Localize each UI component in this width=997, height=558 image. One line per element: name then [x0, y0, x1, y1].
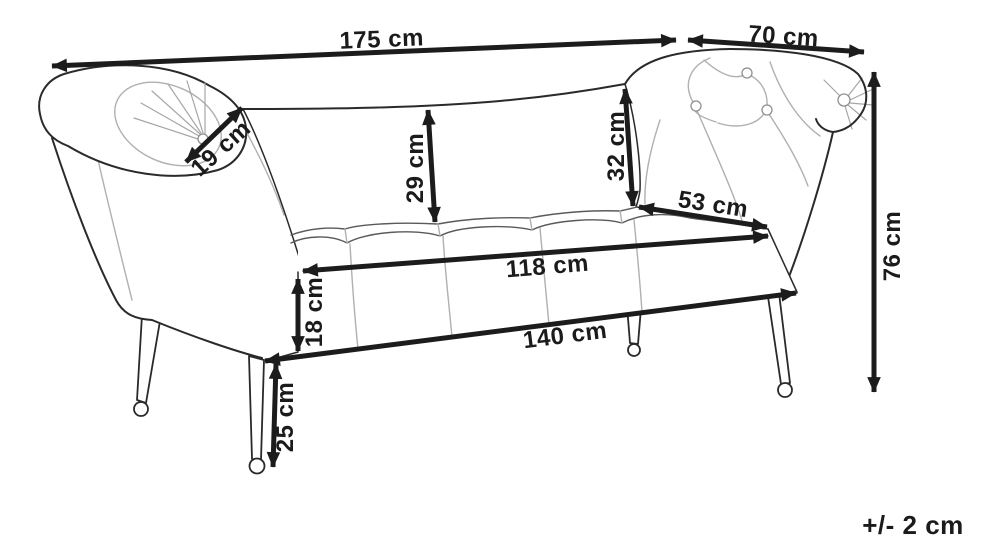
- dim-seat-thickness-label: 18 cm: [301, 277, 328, 348]
- dim-backrest-right-height-label: 32 cm: [603, 111, 630, 182]
- dimension-diagram-page: 175 cm 70 cm 19 cm 29 cm 32 cm 53 cm 118…: [0, 0, 997, 558]
- bench-dimension-diagram: 175 cm 70 cm 19 cm 29 cm 32 cm 53 cm 118…: [0, 0, 997, 558]
- dim-backrest-left-height-label: 29 cm: [402, 133, 429, 204]
- ball-foot-left-rear: [134, 402, 148, 416]
- tufting-button: [742, 68, 752, 78]
- ball-foot-left-front: [250, 459, 265, 474]
- leg-left-front: [249, 356, 264, 460]
- leg-left-rear: [137, 315, 160, 403]
- tufting-button: [762, 105, 772, 115]
- dim-armrest-width-label: 70 cm: [747, 21, 819, 53]
- tolerance-note: +/- 2 cm: [862, 510, 964, 540]
- dim-total-width-label: 175 cm: [339, 24, 424, 54]
- dim-total-height-label: 76 cm: [879, 211, 906, 282]
- tufting-button: [691, 101, 701, 111]
- leg-right-front: [767, 290, 790, 384]
- ball-foot-right-rear: [628, 344, 640, 356]
- dim-leg-height-label: 25 cm: [272, 382, 299, 453]
- ball-foot-right-front: [778, 383, 792, 397]
- tufting-button: [838, 94, 850, 106]
